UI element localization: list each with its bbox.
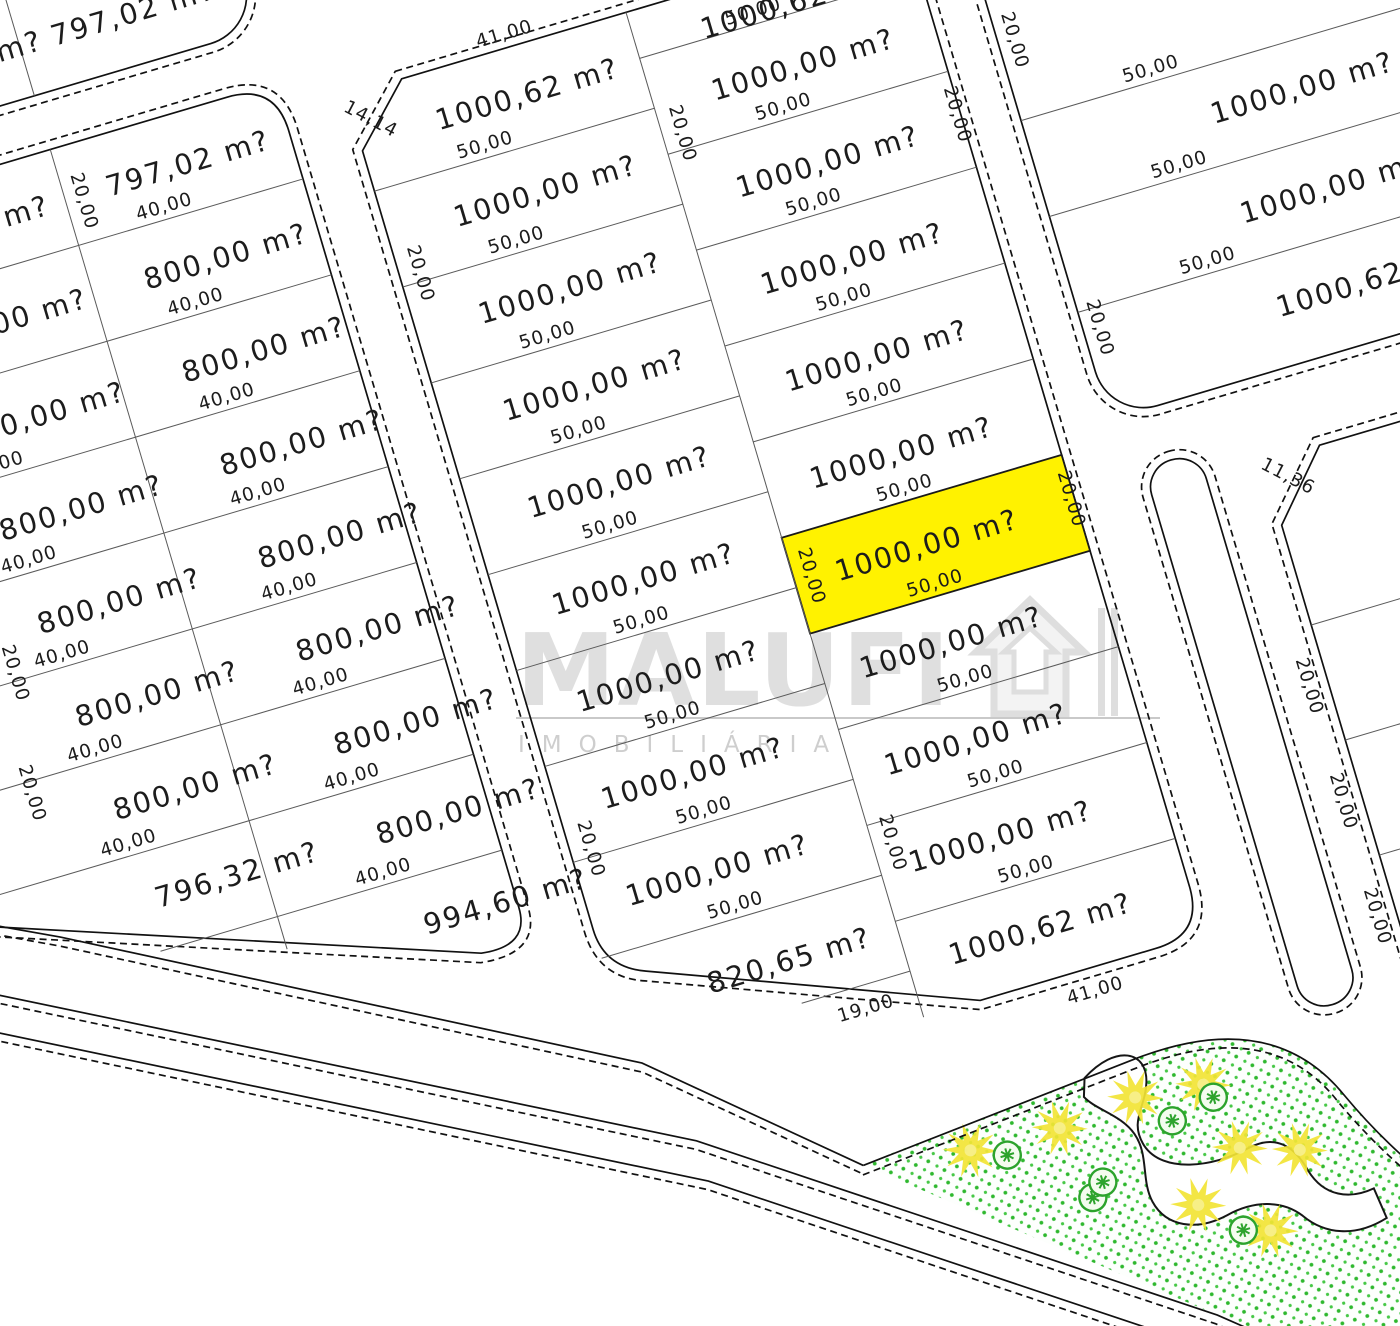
plat-map: MALUFI IMOBILIÁRIA 797,02 m? 797,02 m? — [0, 0, 1400, 1326]
plat-map-page: MALUFI IMOBILIÁRIA 797,02 m? 797,02 m? — [0, 0, 1400, 1326]
watermark-subtitle-text: IMOBILIÁRIA — [518, 730, 846, 758]
